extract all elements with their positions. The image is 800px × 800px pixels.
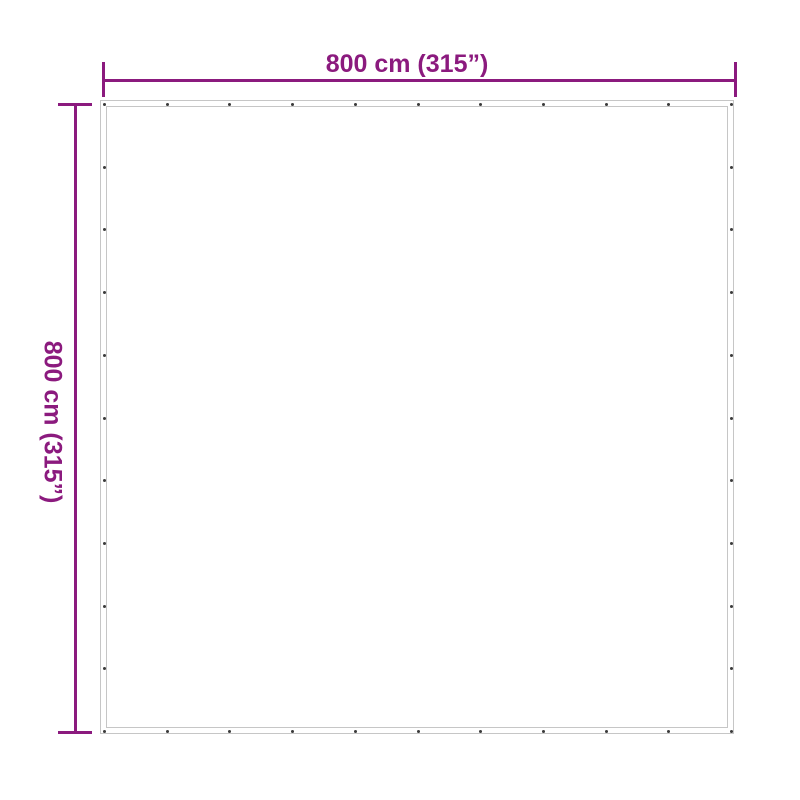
eyelet-dot [730, 730, 733, 733]
eyelet-dot [605, 730, 608, 733]
eyelet-dot [730, 542, 733, 545]
eyelet-dot [542, 730, 545, 733]
height-dimension-line [74, 104, 77, 734]
width-dimension-line [102, 79, 737, 82]
eyelet-dot [730, 605, 733, 608]
eyelet-dot [542, 103, 545, 106]
eyelet-dot [103, 103, 106, 106]
eyelet-dot [354, 730, 357, 733]
height-dimension-bottom-cap [58, 731, 92, 734]
eyelet-dot [103, 730, 106, 733]
eyelet-dot [166, 103, 169, 106]
eyelet-dot [166, 730, 169, 733]
tarp-outline [100, 100, 734, 734]
eyelet-dot [605, 103, 608, 106]
eyelet-dot [291, 730, 294, 733]
eyelet-dot [354, 103, 357, 106]
height-dimension-top-cap [58, 103, 92, 106]
eyelet-dot [730, 354, 733, 357]
width-dimension-right-cap [734, 62, 737, 97]
product-dimension-diagram: 800 cm (315”) 800 cm (315”) [0, 0, 800, 800]
eyelet-dot [103, 417, 106, 420]
eyelet-dot [730, 166, 733, 169]
width-dimension-label: 800 cm (315”) [326, 52, 489, 77]
tarp-hem-inner-line [106, 106, 728, 728]
eyelet-dot [730, 291, 733, 294]
height-dimension-label: 800 cm (315”) [40, 341, 65, 504]
eyelet-dot [103, 166, 106, 169]
eyelet-dot [667, 730, 670, 733]
eyelet-dot [103, 605, 106, 608]
eyelet-dot [417, 730, 420, 733]
width-dimension-left-cap [102, 62, 105, 97]
eyelet-dot [730, 228, 733, 231]
eyelet-dot [730, 479, 733, 482]
eyelet-dot [417, 103, 420, 106]
eyelet-dot [103, 354, 106, 357]
eyelet-dot [228, 730, 231, 733]
eyelet-dot [103, 542, 106, 545]
eyelet-dot [730, 417, 733, 420]
eyelet-dot [730, 667, 733, 670]
eyelet-dot [479, 730, 482, 733]
eyelet-dot [730, 103, 733, 106]
